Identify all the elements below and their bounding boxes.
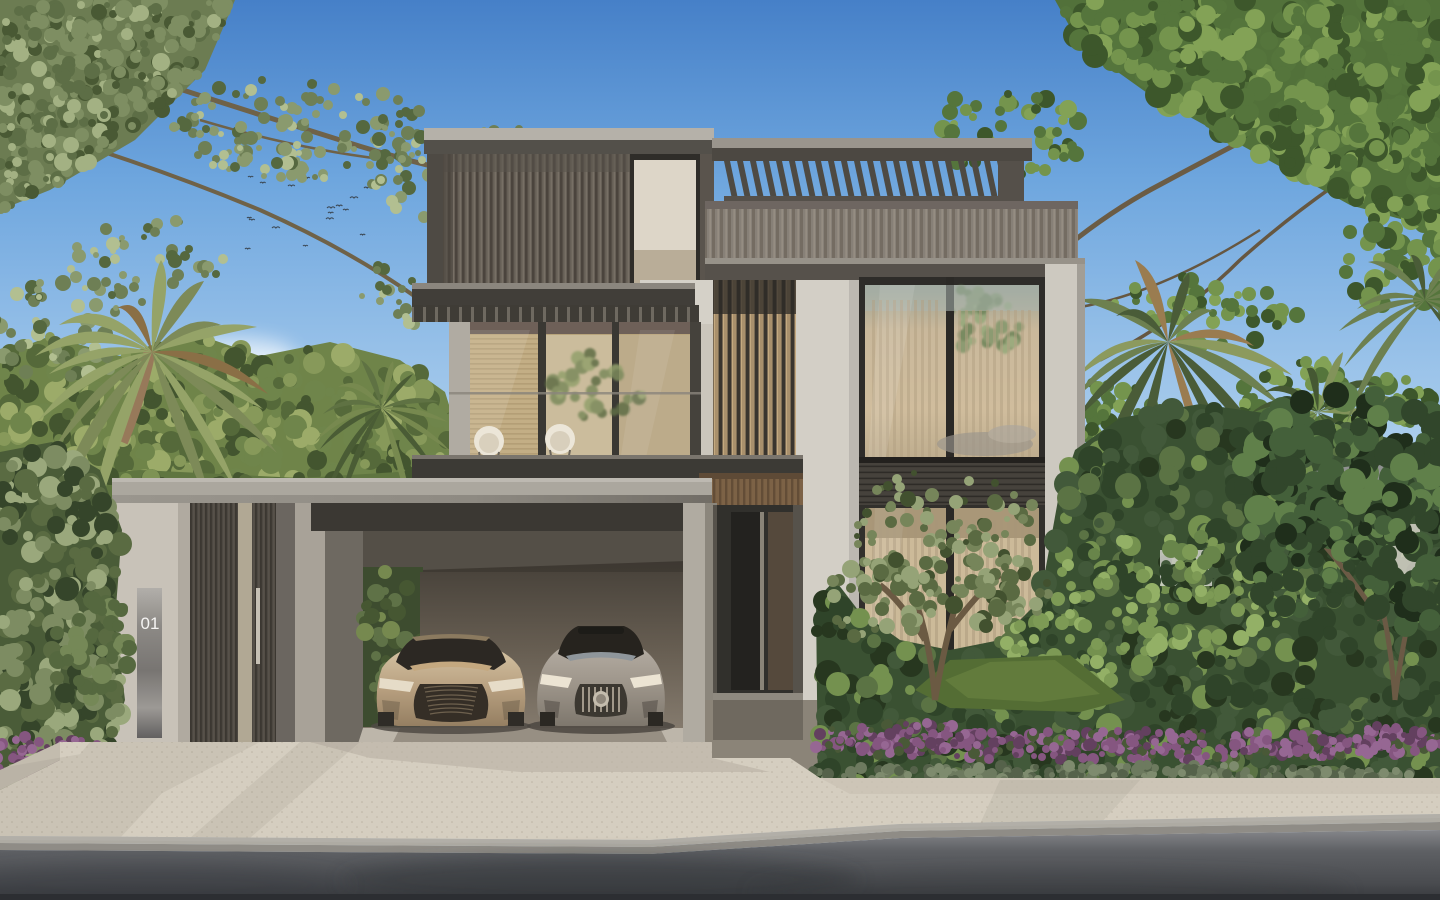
svg-text:01: 01 bbox=[141, 614, 160, 633]
